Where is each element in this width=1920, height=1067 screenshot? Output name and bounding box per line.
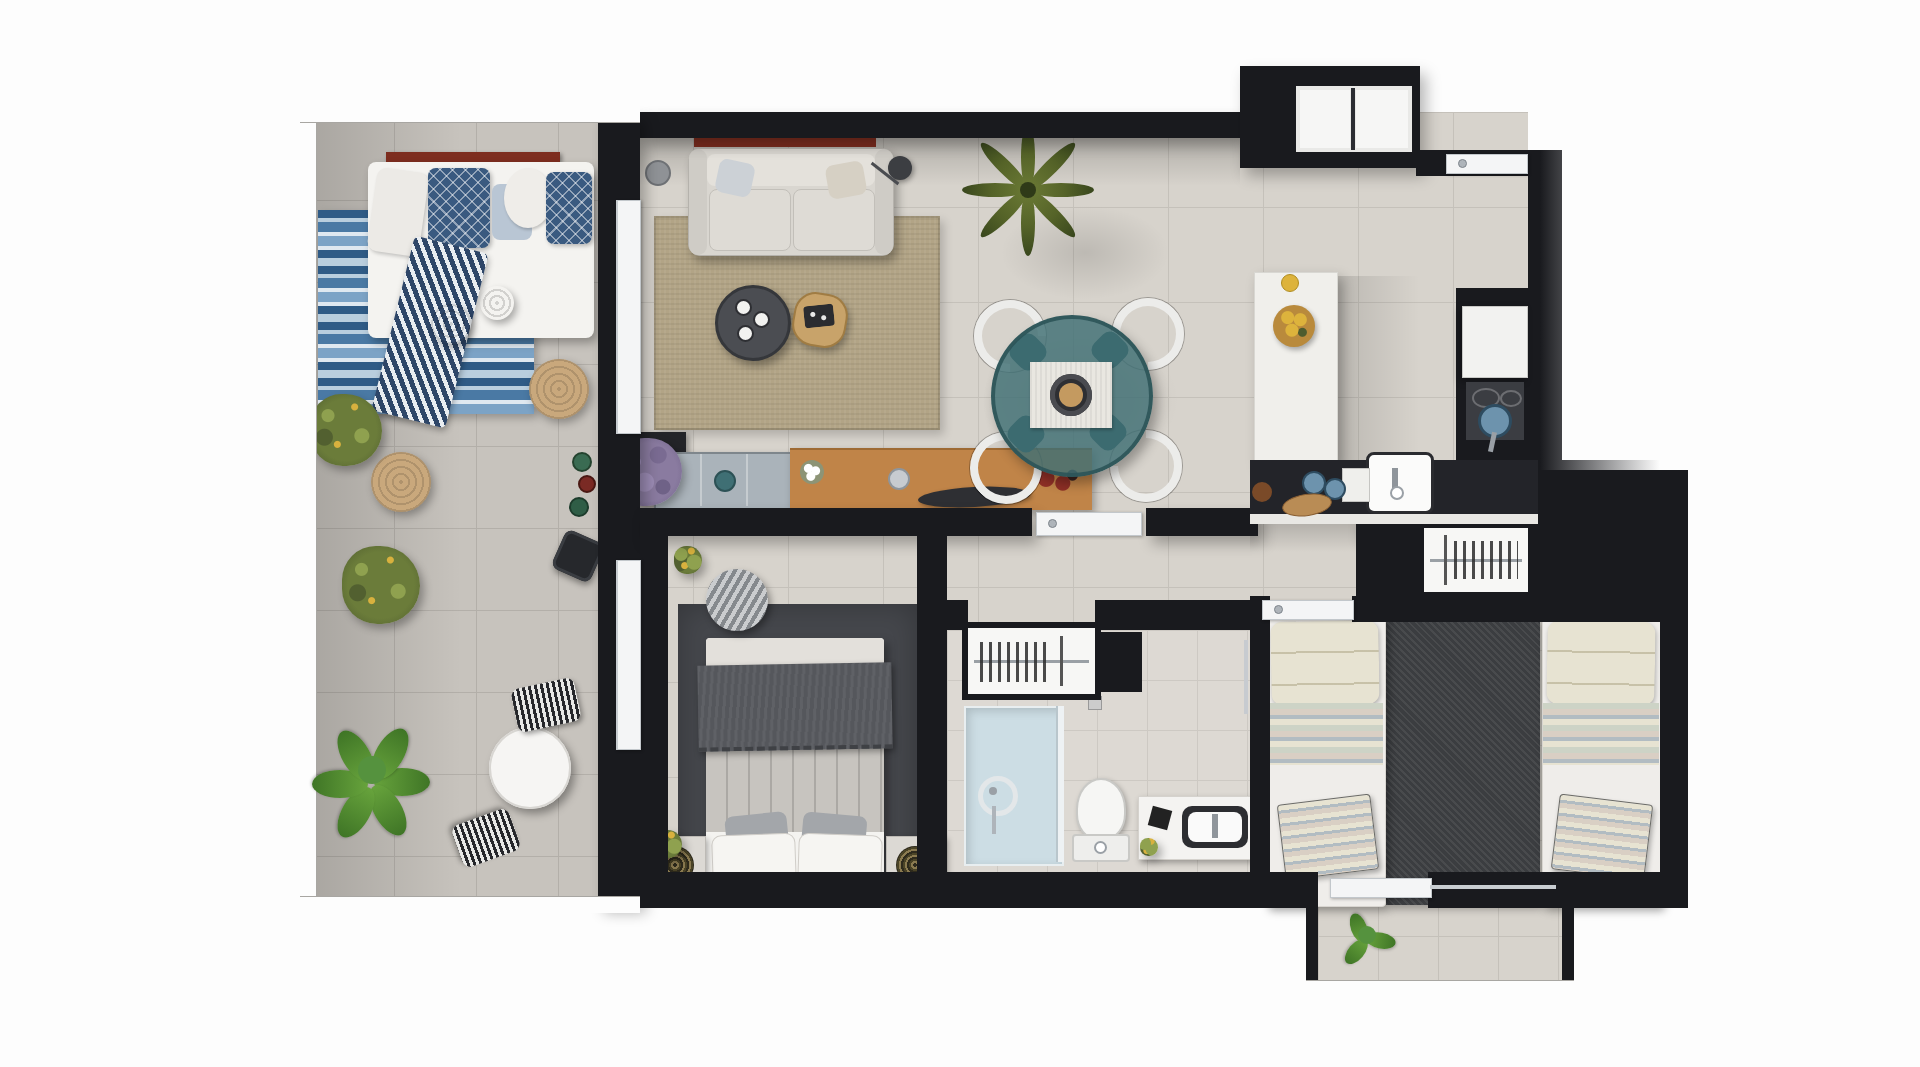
bistro-table [489,727,571,809]
storage-jar-1 [1302,471,1326,495]
sink-drain [1390,486,1404,500]
vanity-plant [1140,838,1158,856]
wall-bath-top-b [1095,600,1250,630]
wood-decor [1252,482,1272,502]
balcony-glass-line [1430,885,1556,889]
balcony-slider [1330,878,1432,898]
lemon-bowl [1273,305,1315,347]
wall-bottom-right [1428,872,1688,908]
wall-hall-b [1146,508,1258,536]
wardrobe-hangers [980,642,1052,682]
serving-bowl-inner [1059,383,1083,407]
sofa [688,148,894,256]
window-mullion [1351,88,1355,150]
plant-center [1358,926,1376,944]
burner-2 [1500,390,1522,407]
olive-plant-1 [310,394,382,466]
kitchen-island [1254,272,1338,464]
shower-head-dot [989,787,997,795]
terrace-frame-bottom [300,896,640,913]
coffee-cup-3 [737,325,754,342]
edge-fade [1540,40,1740,470]
jute-pouf-2 [371,452,431,512]
potted-palm [958,120,1098,260]
floor-plan-canvas [0,0,1920,1067]
wall-bath-right [1250,596,1270,905]
bed-pillow [1546,620,1655,706]
timber-wall-rail [694,138,876,147]
wardrobe-hangers [1454,541,1518,579]
vanity-tap [1212,814,1218,838]
terrace-bedroom-slider [616,560,641,750]
wardrobe-divider [1444,535,1447,585]
plant-center [358,756,386,784]
bedroom-plant-1 [674,546,702,574]
olive-plant-2 [342,546,420,624]
wall-bedroom2-top-b [1352,596,1688,622]
glass-cabinet-div2 [746,454,748,506]
flower-vase [800,460,824,484]
wall-bottom-main [598,872,1314,908]
ceramic-vase [645,160,671,186]
shower-head [978,776,1018,816]
bed-blanket [1543,703,1659,765]
entrance-door-handle [1458,159,1467,168]
single-bed-right [1542,616,1662,907]
bench-cushion [1551,794,1654,881]
terrace-living-slider [616,200,641,434]
shower-arm [992,806,996,834]
wall-living-top [640,112,1240,138]
sofa-pillow-2 [824,160,867,200]
master-bed [706,638,884,892]
bathroom-wardrobe [968,628,1095,694]
balcony-balustrade [1306,980,1574,993]
daybed-pillow-navy-2 [546,172,592,244]
striped-pouf [706,569,768,631]
sofa-arm-left [689,149,707,255]
wall-master-right [917,536,947,905]
kitchen-window-frame [1296,86,1412,152]
coffee-cup-2 [753,311,770,328]
daybed-rail [386,152,560,162]
bedroom2-wardrobe [1424,528,1528,592]
metal-cup [888,468,910,490]
window-pane-left [1300,90,1350,148]
shower-glass [1056,706,1064,862]
towel-rail [1244,640,1248,714]
balcony-plant [1336,906,1396,966]
daybed-pillow-round [504,168,552,228]
wall-master-left [640,536,668,905]
palm-center [1020,182,1036,198]
window-pane-right [1356,90,1408,148]
small-appliance [1342,468,1370,502]
refrigerator [1462,306,1528,378]
bed-throw [697,662,892,751]
bed-pillow [1270,620,1379,706]
master-door-handle [1048,519,1057,528]
side-table-tray [803,303,835,328]
wall-balcony-left [1306,872,1318,988]
rattan-pouf-2 [480,286,514,320]
toilet-bowl [1076,778,1126,840]
sofa-pillow-1 [714,158,756,199]
wall-balcony-right [1562,872,1574,988]
decor-bottle-red [578,475,596,493]
glass-cabinet-div [700,454,702,506]
bath-bench [1100,632,1142,692]
bedroom2-door-handle [1274,605,1283,614]
coffee-cup-1 [735,299,752,316]
sofa-cushion-left [709,189,791,251]
kitchen-sink [1366,452,1434,514]
bench-cushion [1277,794,1380,881]
jute-pouf-1 [529,359,589,419]
daybed-pillow-navy [428,168,490,248]
single-lemon [1281,274,1299,292]
decor-bottle-green-2 [569,497,589,517]
rattan-pouf-1 [431,304,471,344]
second-bedroom-rug [1386,618,1540,905]
terrace-frame-top [300,106,640,123]
bed-blanket [1267,703,1383,765]
wardrobe-divider [1060,636,1063,686]
wall-hall-a [640,508,1032,536]
teal-bowl [714,470,736,492]
single-bed-left [1266,616,1386,907]
decor-bottle-green [572,452,592,472]
toilet-button [1094,841,1107,854]
wall-bedroom2-right [1660,622,1688,908]
terrace-leafy-plant [306,708,442,844]
